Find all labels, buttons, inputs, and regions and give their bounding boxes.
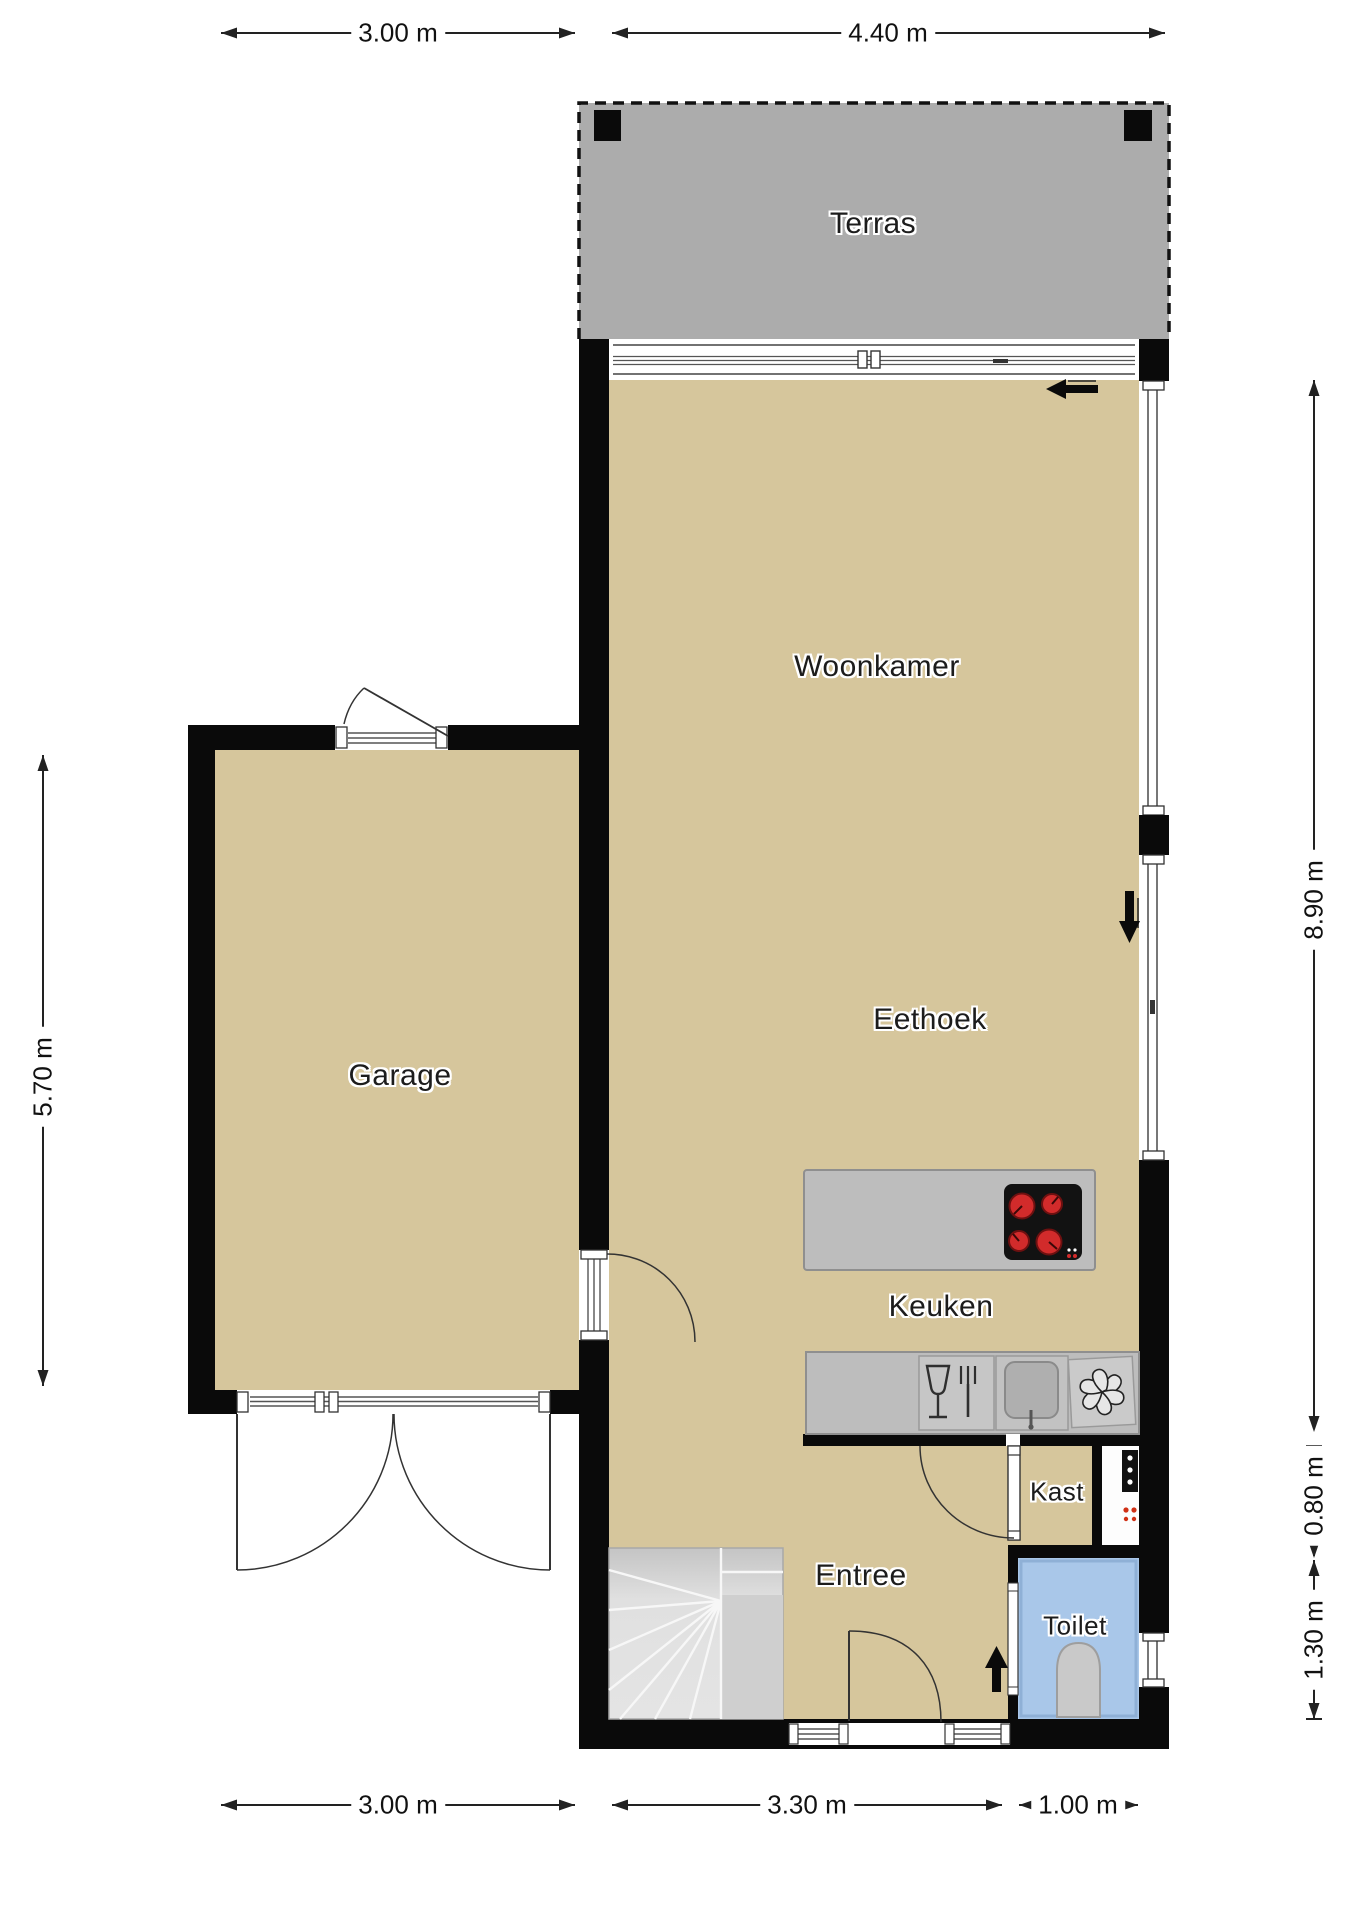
toilet-bowl-icon xyxy=(1057,1643,1100,1717)
room-label-entree: Entree xyxy=(815,1559,906,1593)
dim-right-kast: 0.80 m xyxy=(1299,1446,1330,1546)
living-floor xyxy=(609,380,1139,1719)
cooktop-burners-icon xyxy=(1004,1184,1082,1260)
terrace-post-icon xyxy=(594,110,621,141)
dim-right-toilet: 1.30 m xyxy=(1299,1590,1330,1690)
room-label-toilet: Toilet xyxy=(1043,1611,1107,1642)
kitchen-island xyxy=(804,1170,1095,1270)
terrace-post-icon xyxy=(1124,110,1152,141)
dishwasher-glass-fork-icon xyxy=(919,1356,994,1430)
floorplan-drawing xyxy=(0,0,1358,1920)
dim-bottom-entree: 3.30 m xyxy=(760,1790,854,1821)
toilet-window xyxy=(1139,1633,1169,1687)
extractor-fan-icon xyxy=(1068,1356,1135,1427)
dim-bottom-toilet: 1.00 m xyxy=(1031,1790,1125,1821)
meter-cabinet-icon xyxy=(1102,1446,1139,1545)
dim-bottom-garage: 3.00 m xyxy=(351,1790,445,1821)
room-label-woonkamer: Woonkamer xyxy=(794,650,960,684)
dim-right-living: 8.90 m xyxy=(1299,850,1330,950)
toilet-door xyxy=(1008,1583,1018,1695)
sink-icon xyxy=(996,1356,1068,1430)
room-label-kast: Kast xyxy=(1030,1477,1084,1508)
room-label-terras: Terras xyxy=(830,207,916,241)
terrace-sliding-window xyxy=(579,339,1169,380)
garage-back-door xyxy=(335,688,448,750)
room-label-garage: Garage xyxy=(348,1059,451,1093)
room-label-eethoek: Eethoek xyxy=(873,1003,987,1037)
dim-top-garage: 3.00 m xyxy=(351,18,445,49)
dim-left-garage: 5.70 m xyxy=(28,1027,59,1127)
dim-top-house: 4.40 m xyxy=(841,18,935,49)
kitchen-counter xyxy=(806,1352,1139,1434)
room-label-keuken: Keuken xyxy=(889,1290,994,1324)
stairs xyxy=(609,1548,783,1719)
window xyxy=(1139,381,1169,815)
floorplan-canvas: Terras Woonkamer Eethoek Keuken Garage E… xyxy=(0,0,1358,1920)
garage-double-door xyxy=(237,1390,550,1570)
window xyxy=(1139,855,1169,1160)
